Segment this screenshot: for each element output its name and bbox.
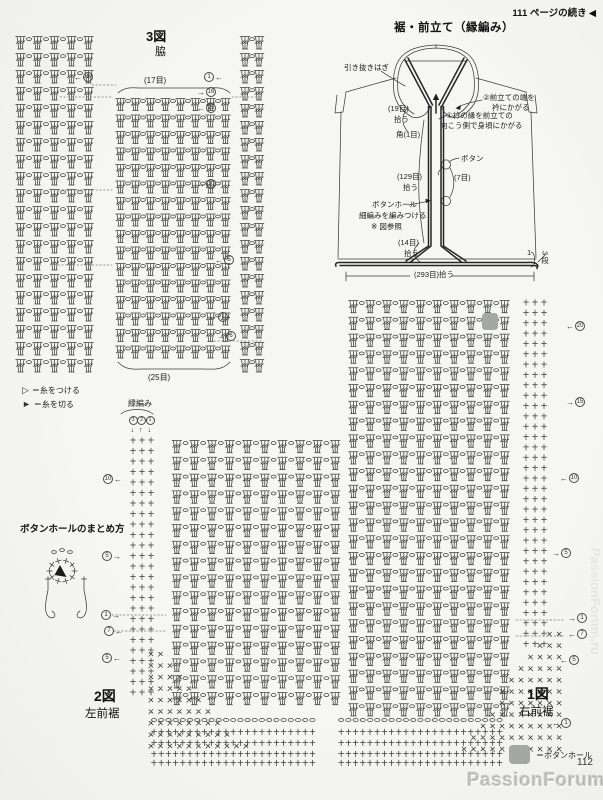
row-direction-arrow-icon: ← (114, 475, 122, 484)
continuation-note-text: 111 ページの続き (512, 9, 586, 20)
edging-step-arrow-icon: ↑ (139, 427, 143, 435)
watermark: PassionForum.ru (467, 770, 603, 792)
chart3-row-marker: 1← (204, 72, 223, 82)
row-direction-arrow-icon: → (197, 180, 205, 189)
row-number-circle: 10 (206, 179, 216, 189)
chart3-title: 3図 (146, 30, 166, 45)
row-direction-arrow-icon: ← (197, 104, 205, 113)
row-direction-arrow-icon: ← (568, 630, 576, 639)
chart3-row-marker: →6 (217, 331, 236, 341)
row-number-circle: 1 (83, 72, 93, 82)
row-number-circle: 5 (561, 548, 571, 558)
watermark-side: PassionForum.ru (588, 548, 603, 655)
bigchart-row-marker-right: ←7 (568, 629, 587, 639)
garment-label: 拾う (403, 184, 418, 193)
bigchart-row-marker-left: 5→ (102, 551, 121, 561)
row-number-circle: 15 (575, 397, 585, 407)
page-number: 112 (577, 757, 593, 769)
row-direction-arrow-icon: ← (115, 627, 123, 636)
row-number-circle: 7 (104, 626, 114, 636)
garment-title: 裾・前立て（縁編み） (394, 22, 514, 35)
row-direction-arrow-icon: → (113, 552, 121, 561)
legend-attach-yarn: ▷ ＝糸をつける (22, 385, 80, 395)
row-direction-arrow-icon: ← (552, 719, 560, 728)
garment-label: ※ 図参照 (371, 223, 402, 232)
bigchart-row-marker-right: →1 (568, 613, 587, 623)
row-direction-arrow-icon: → (552, 549, 560, 558)
row-number-circle: 5 (102, 653, 112, 663)
chart3-row-marker: →16 (197, 87, 216, 97)
row-number-circle: 1 (204, 72, 214, 82)
row-number-circle: 7 (577, 629, 587, 639)
chart3-row-marker: →10 (197, 179, 216, 189)
garment-label: ボタンホール (372, 201, 417, 210)
diagram-strokes (336, 58, 538, 269)
attach-yarn-icon: ▷ (22, 385, 29, 395)
chart3-row-marker: ←15 (197, 103, 216, 113)
garment-label: 角(1目) (396, 131, 420, 140)
fig1-subtitle: 右前裾 (519, 706, 554, 719)
bigchart-row-marker-right: ←20 (566, 321, 585, 331)
bigchart-row-marker-left: 5← (102, 653, 121, 663)
chart3-bottom-count: (25目) (148, 373, 170, 382)
row-direction-arrow-icon: ← (560, 656, 568, 665)
scanned-page: 111 ページの続き◀ 裾・前立て（縁編み） 3図 脇 (17目) (25目) … (0, 0, 603, 800)
chart3-row-marker: ←5 (215, 255, 234, 265)
garment-label: 1 (527, 249, 531, 258)
bigchart-row-marker-right: ←10 (560, 473, 579, 483)
garment-label: (19目) (388, 105, 409, 114)
edging-label: 縁編み (128, 399, 152, 408)
buttonhole-howto-title: ボタンホールのまとめ方 (20, 525, 125, 536)
row-direction-arrow-icon: → (568, 614, 576, 623)
bigchart-row-marker-left: 1→ (101, 610, 120, 620)
bigchart-row-marker-right: →15 (566, 397, 585, 407)
garment-label: 引き抜きはぎ (344, 64, 389, 73)
bigchart-row-marker-right: →5 (552, 548, 571, 558)
continuation-note: 111 ページの続き◀ (512, 9, 596, 20)
continuation-arrow-icon: ◀ (589, 9, 596, 20)
chart3-top-count: (17目) (144, 76, 166, 85)
garment-label: 細編みを編みつける (359, 212, 427, 221)
row-number-circle: 10 (569, 473, 579, 483)
row-direction-arrow-icon: ← (209, 313, 217, 322)
edging-step-arrow-icon: ↓ (131, 427, 135, 435)
garment-label: ②前立ての端を (483, 94, 535, 103)
legend-cut-yarn-text: ＝糸を切る (34, 400, 74, 409)
bigchart-row-marker-right: ←5 (560, 655, 579, 665)
edging-step-circle: 2 (137, 416, 146, 425)
garment-label: (14目) (398, 239, 419, 248)
row-number-circle: 10 (103, 474, 113, 484)
row-number-circle: 6 (226, 331, 236, 341)
row-direction-arrow-icon: ← (215, 256, 223, 265)
diagram-strokes (16, 37, 561, 766)
row-direction-arrow-icon: ← (113, 654, 121, 663)
garment-label: (129目) (397, 173, 422, 182)
fig2-subtitle: 左前裾 (85, 708, 120, 721)
row-number-circle: 16 (206, 87, 216, 97)
arrowheads (55, 94, 462, 578)
row-number-circle: 5 (102, 551, 112, 561)
garment-label: 3段 (540, 251, 549, 265)
cut-yarn-icon: ► (22, 399, 31, 409)
row-direction-arrow-icon: ← (560, 474, 568, 483)
bigchart-row-marker-left: 10← (103, 474, 122, 484)
row-number-circle: 5 (224, 255, 234, 265)
row-direction-arrow-icon: → (566, 398, 574, 407)
legend-attach-yarn-text: ＝糸をつける (32, 386, 80, 395)
garment-label: ボタン (461, 155, 484, 164)
row-direction-arrow-icon: → (217, 332, 225, 341)
edging-step-circle: 1 (146, 416, 155, 425)
garment-label: (7目) (454, 174, 471, 183)
bigchart-row-marker-right: ←1 (552, 718, 571, 728)
fig1-title: 1図 (527, 686, 549, 702)
row-number-circle: 20 (575, 321, 585, 331)
garment-label: (293目)拾う (414, 271, 454, 280)
row-number-circle: 1 (577, 613, 587, 623)
chart3-row-marker: ←1 (209, 312, 228, 322)
edging-step-arrow-icon: ↓ (148, 427, 152, 435)
garment-label: 向こう側で身頃にかがる (440, 122, 523, 131)
chart3-row-marker: ←1 (74, 72, 93, 82)
chart3-subtitle: 脇 (155, 46, 166, 59)
fig2-title: 2図 (94, 688, 116, 704)
garment-label: ①衿の縁を前立ての (446, 112, 513, 121)
row-direction-arrow-icon: → (197, 88, 205, 97)
buttonhole-swatch (509, 745, 530, 764)
garment-label: 拾う (394, 116, 409, 125)
garment-label: 拾う (404, 250, 419, 259)
row-direction-arrow-icon: ← (566, 322, 574, 331)
bigchart-row-marker-left: 7← (104, 626, 123, 636)
legend-cut-yarn: ► ＝糸を切る (22, 399, 74, 409)
buttonhole-marker-square (482, 313, 498, 330)
row-number-circle: 1 (101, 610, 111, 620)
row-number-circle: 5 (569, 655, 579, 665)
row-number-circle: 1 (218, 312, 228, 322)
row-direction-arrow-icon: ← (74, 73, 82, 82)
row-number-circle: 1 (561, 718, 571, 728)
row-number-circle: 15 (206, 103, 216, 113)
row-direction-arrow-icon: → (112, 611, 120, 620)
row-direction-arrow-icon: ← (215, 73, 223, 82)
